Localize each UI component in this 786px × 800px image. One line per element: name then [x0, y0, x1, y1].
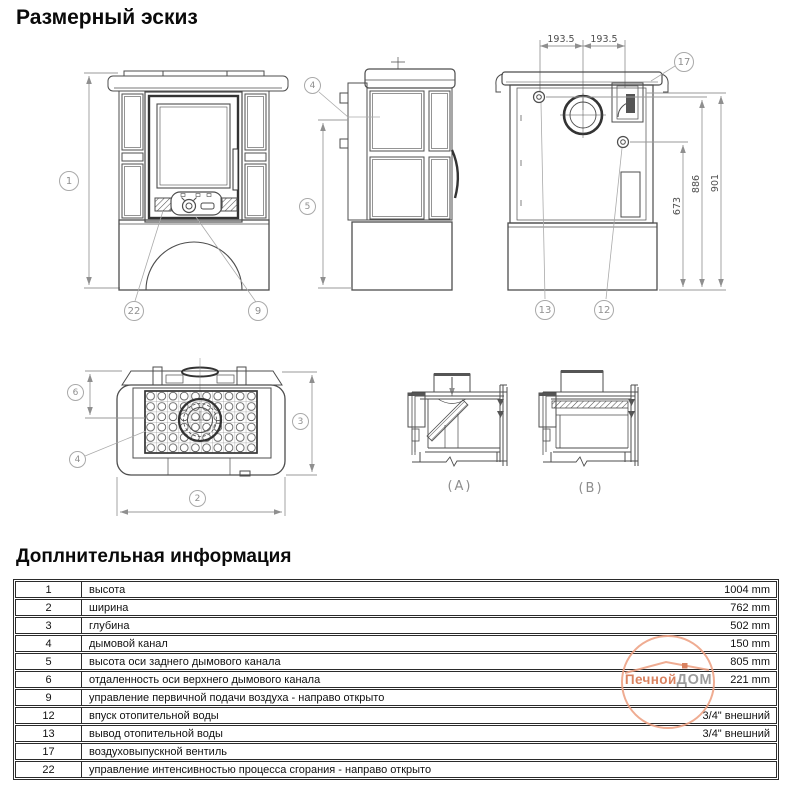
callout-depth: 3	[292, 413, 309, 430]
row-description: впуск отопительной воды	[82, 708, 680, 723]
dim-901: 901	[709, 168, 721, 198]
callout-grid: 4	[69, 451, 86, 468]
dim-193-5-left: 193.5	[544, 34, 578, 45]
table-row: 6 отдаленность оси верхнего дымового кан…	[15, 671, 777, 688]
table-row: 4 дымовой канал 150 mm	[15, 635, 777, 652]
table-row: 5 высота оси заднего дымового канала 805…	[15, 653, 777, 670]
callout-intensity-ctrl: 22	[124, 301, 144, 321]
row-number: 12	[16, 708, 82, 723]
row-value: 150 mm	[680, 636, 776, 651]
section-a	[408, 373, 507, 466]
row-value: 805 mm	[680, 654, 776, 669]
row-number: 1	[16, 582, 82, 597]
row-number: 5	[16, 654, 82, 669]
table-row: 12 впуск отопительной воды 3/4" внешний	[15, 707, 777, 724]
table-row: 2 ширина 762 mm	[15, 599, 777, 616]
section-b	[539, 370, 638, 466]
page: Размерный эскиз	[0, 0, 786, 800]
table-row: 13 вывод отопительной воды 3/4" внешний	[15, 725, 777, 742]
row-number: 6	[16, 672, 82, 687]
row-description: дымовой канал	[82, 636, 680, 651]
row-value	[680, 690, 776, 705]
row-description: глубина	[82, 618, 680, 633]
callout-rear-flue-axis: 5	[299, 198, 316, 215]
row-value: 502 mm	[680, 618, 776, 633]
callout-width: 2	[189, 490, 206, 507]
row-number: 9	[16, 690, 82, 705]
row-value: 221 mm	[680, 672, 776, 687]
callout-air-valve: 17	[674, 52, 694, 72]
row-number: 2	[16, 600, 82, 615]
section-b-label: (B)	[569, 481, 613, 496]
info-section-title: Доплнительная информация	[16, 546, 291, 568]
info-table: 1 высота 1004 mm 2 ширина 762 mm 3 глуби…	[13, 579, 779, 780]
row-value: 1004 mm	[680, 582, 776, 597]
row-number: 4	[16, 636, 82, 651]
callout-smoke-channel: 4	[304, 77, 321, 94]
callout-height: 1	[59, 171, 79, 191]
dim-673: 673	[671, 191, 683, 221]
row-number: 22	[16, 762, 82, 777]
callout-top-flue-offset: 6	[67, 384, 84, 401]
row-value	[680, 744, 776, 759]
callout-water-outlet: 13	[535, 300, 555, 320]
table-row: 3 глубина 502 mm	[15, 617, 777, 634]
row-description: управление интенсивностью процесса сгора…	[82, 762, 680, 777]
row-value: 3/4" внешний	[680, 708, 776, 723]
row-value: 762 mm	[680, 600, 776, 615]
row-description: воздуховыпускной вентиль	[82, 744, 680, 759]
side-view	[318, 57, 458, 290]
row-description: вывод отопительной воды	[82, 726, 680, 741]
callout-water-inlet: 12	[594, 300, 614, 320]
row-value	[680, 762, 776, 777]
row-description: высота	[82, 582, 680, 597]
dim-886: 886	[690, 169, 702, 199]
row-number: 13	[16, 726, 82, 741]
row-number: 3	[16, 618, 82, 633]
table-row: 22 управление интенсивностью процесса сг…	[15, 761, 777, 778]
row-description: ширина	[82, 600, 680, 615]
table-row: 9 управление первичной подачи воздуха - …	[15, 689, 777, 706]
dimensional-drawing	[0, 0, 786, 545]
front-view	[84, 71, 288, 302]
table-row: 1 высота 1004 mm	[15, 581, 777, 598]
row-number: 17	[16, 744, 82, 759]
section-a-label: (A)	[438, 479, 482, 494]
table-row: 17 воздуховыпускной вентиль	[15, 743, 777, 760]
dim-193-5-right: 193.5	[587, 34, 621, 45]
row-value: 3/4" внешний	[680, 726, 776, 741]
callout-primary-air: 9	[248, 301, 268, 321]
row-description: отдаленность оси верхнего дымового канал…	[82, 672, 680, 687]
row-description: высота оси заднего дымового канала	[82, 654, 680, 669]
row-description: управление первичной подачи воздуха - на…	[82, 690, 680, 705]
